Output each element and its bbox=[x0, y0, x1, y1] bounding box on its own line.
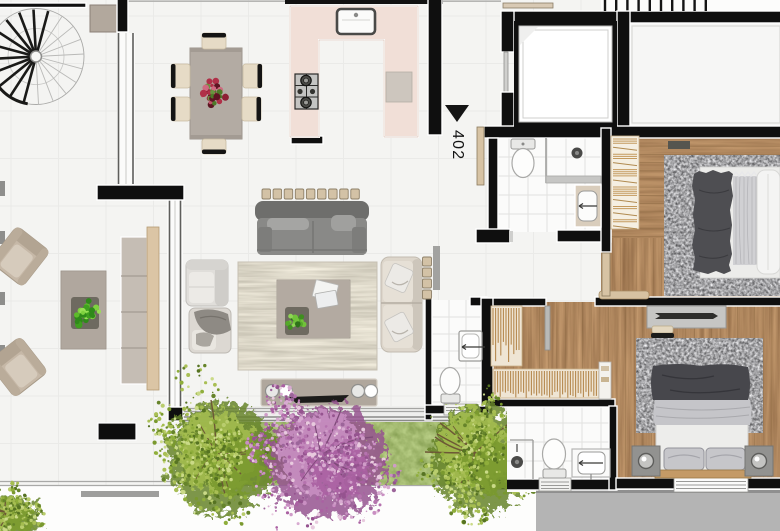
svg-text:402: 402 bbox=[449, 130, 466, 160]
